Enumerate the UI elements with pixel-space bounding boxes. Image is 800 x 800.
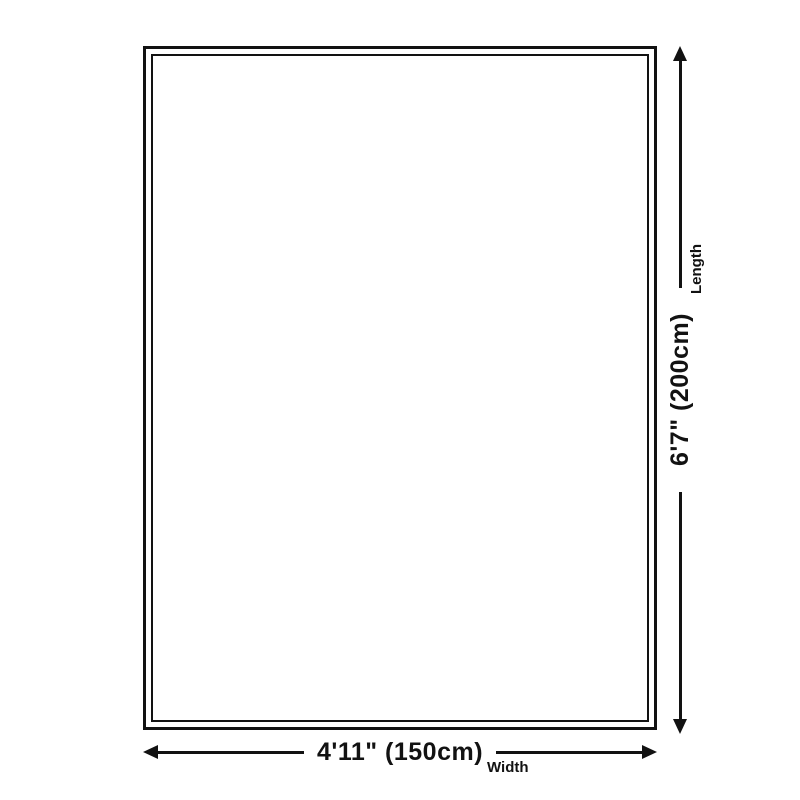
rug-inner-outline	[151, 54, 649, 722]
rug-outline	[143, 46, 657, 730]
arrowhead-up-icon	[673, 46, 687, 61]
length-dimension-line-bottom	[679, 492, 682, 719]
width-dimension-line-right	[496, 751, 642, 754]
width-dimension: 4'11" (150cm) Width	[143, 729, 657, 775]
rug-size-diagram: 4'11" (150cm) Width 6'7" (200cm) Length	[0, 0, 800, 800]
width-dimension-line-left	[158, 751, 304, 754]
width-axis-label: Width	[487, 759, 529, 776]
arrowhead-left-icon	[143, 745, 158, 759]
arrowhead-right-icon	[642, 745, 657, 759]
width-value: 4'11" (150cm)	[317, 738, 483, 767]
length-value: 6'7" (200cm)	[666, 313, 695, 466]
length-axis-label: Length	[688, 244, 705, 294]
length-dimension: 6'7" (200cm) Length	[664, 46, 696, 734]
arrowhead-down-icon	[673, 719, 687, 734]
length-dimension-line-top	[679, 61, 682, 288]
